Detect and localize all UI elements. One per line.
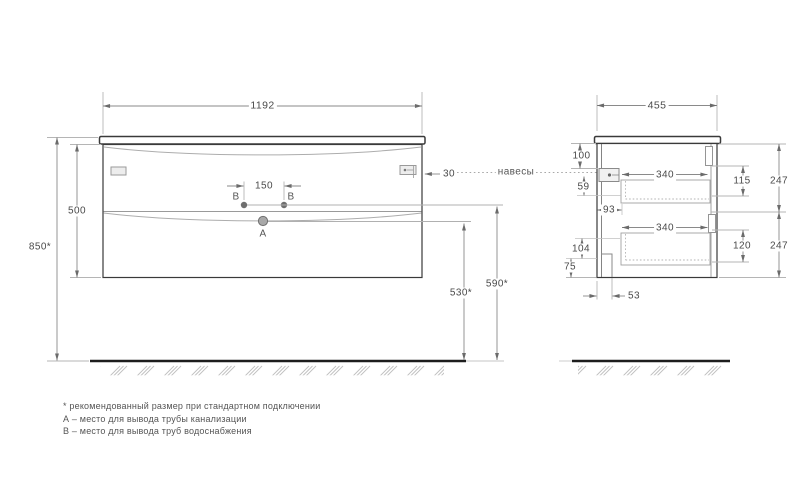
dim-drain-height: 530* [448, 288, 474, 299]
label-point-b-right: В [287, 192, 294, 203]
dim-width: 1192 [248, 100, 276, 111]
footnote-recommended: * рекомендованный размер при стандартном… [63, 400, 320, 413]
dim-depth: 455 [646, 100, 669, 111]
dim-top-to-hanger: 100 [571, 151, 593, 162]
callout-hangers: навесы [496, 167, 536, 178]
dim-inner-height-top: 115 [731, 176, 752, 187]
label-point-b-left: В [232, 192, 239, 203]
dim-hanger-offset: 30 [441, 169, 457, 180]
footnote-point-b: В – место для вывода труб водоснабжения [63, 425, 320, 438]
technical-drawing-vanity: 1192 500 850* 150 30 530* 590* В В А нав… [0, 0, 800, 480]
dim-height: 500 [66, 206, 88, 217]
dim-drawer-depth-bottom: 340 [654, 222, 676, 233]
dim-notch-depth: 53 [626, 291, 642, 302]
dim-hanger-zone: 59 [576, 181, 592, 192]
dim-front-panel-bottom: 247 [768, 241, 790, 252]
dim-front-panel-top: 247 [768, 176, 790, 187]
dim-back-clearance: 93 [601, 205, 617, 216]
dim-water-height: 590* [484, 279, 510, 290]
footnote-point-a: А – место для вывода трубы канализации [63, 413, 320, 426]
dim-tap-spacing: 150 [253, 181, 275, 192]
dim-drawer-depth-top: 340 [654, 169, 676, 180]
footnotes: * рекомендованный размер при стандартном… [63, 400, 320, 438]
dim-inner-height-bottom: 120 [731, 241, 753, 252]
label-point-a: А [259, 229, 266, 240]
dim-bottom-zone: 104 [570, 243, 592, 254]
dim-install-height: 850* [27, 242, 53, 253]
dim-plinth: 75 [562, 262, 578, 273]
